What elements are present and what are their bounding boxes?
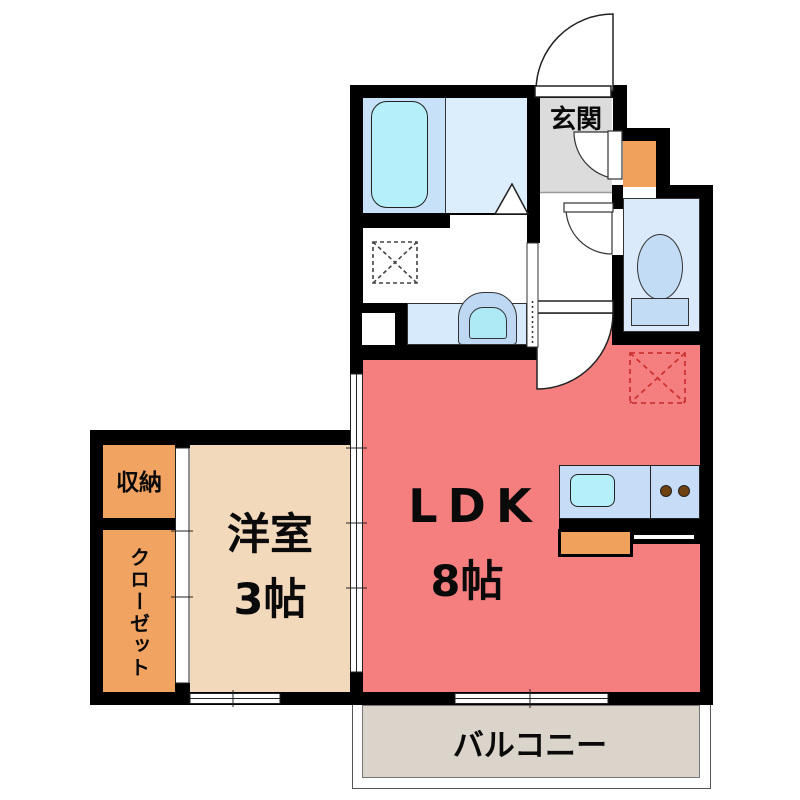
bathroom-floor [445,98,528,213]
wall [175,430,190,448]
wall [700,185,713,705]
wall [103,518,175,530]
toilet-tank [631,298,689,326]
hallway-floor [540,192,612,313]
shoe-cabinet [623,141,656,187]
western-room-label: 洋室 [195,503,345,559]
toilet-bowl [637,234,683,300]
wall [350,345,540,360]
refrigerator-space [558,529,633,557]
entry-door-swing [536,14,613,91]
closet-label: クローゼット [113,538,165,688]
wall [350,692,713,705]
wall [612,332,713,345]
washbasin-bowl [469,307,507,339]
kitchen-sink [570,474,615,507]
wall [350,85,627,98]
toilet-doorway [611,209,623,255]
bathroom-doorway [450,215,527,228]
genkan-label: 玄関 [538,100,614,134]
kitchen-pass-line [634,535,694,539]
ldk-size-label: 8帖 [382,552,552,604]
washroom-niche [362,313,395,345]
ldk-floor [613,345,700,358]
wall [90,430,103,705]
washing-machine-space [373,242,417,283]
floor-plan: 玄関 LDK 8帖 洋室 3帖 収納 クローゼット バルコニー [0,0,800,800]
bathtub [371,101,428,208]
wall [90,692,363,705]
ldk-label: LDK [385,478,565,534]
storage-label: 収納 [104,466,174,494]
western-room-size-label: 3帖 [195,568,345,624]
balcony-label: バルコニー [400,722,660,762]
ldk-floor [537,313,613,358]
wall [90,430,350,445]
